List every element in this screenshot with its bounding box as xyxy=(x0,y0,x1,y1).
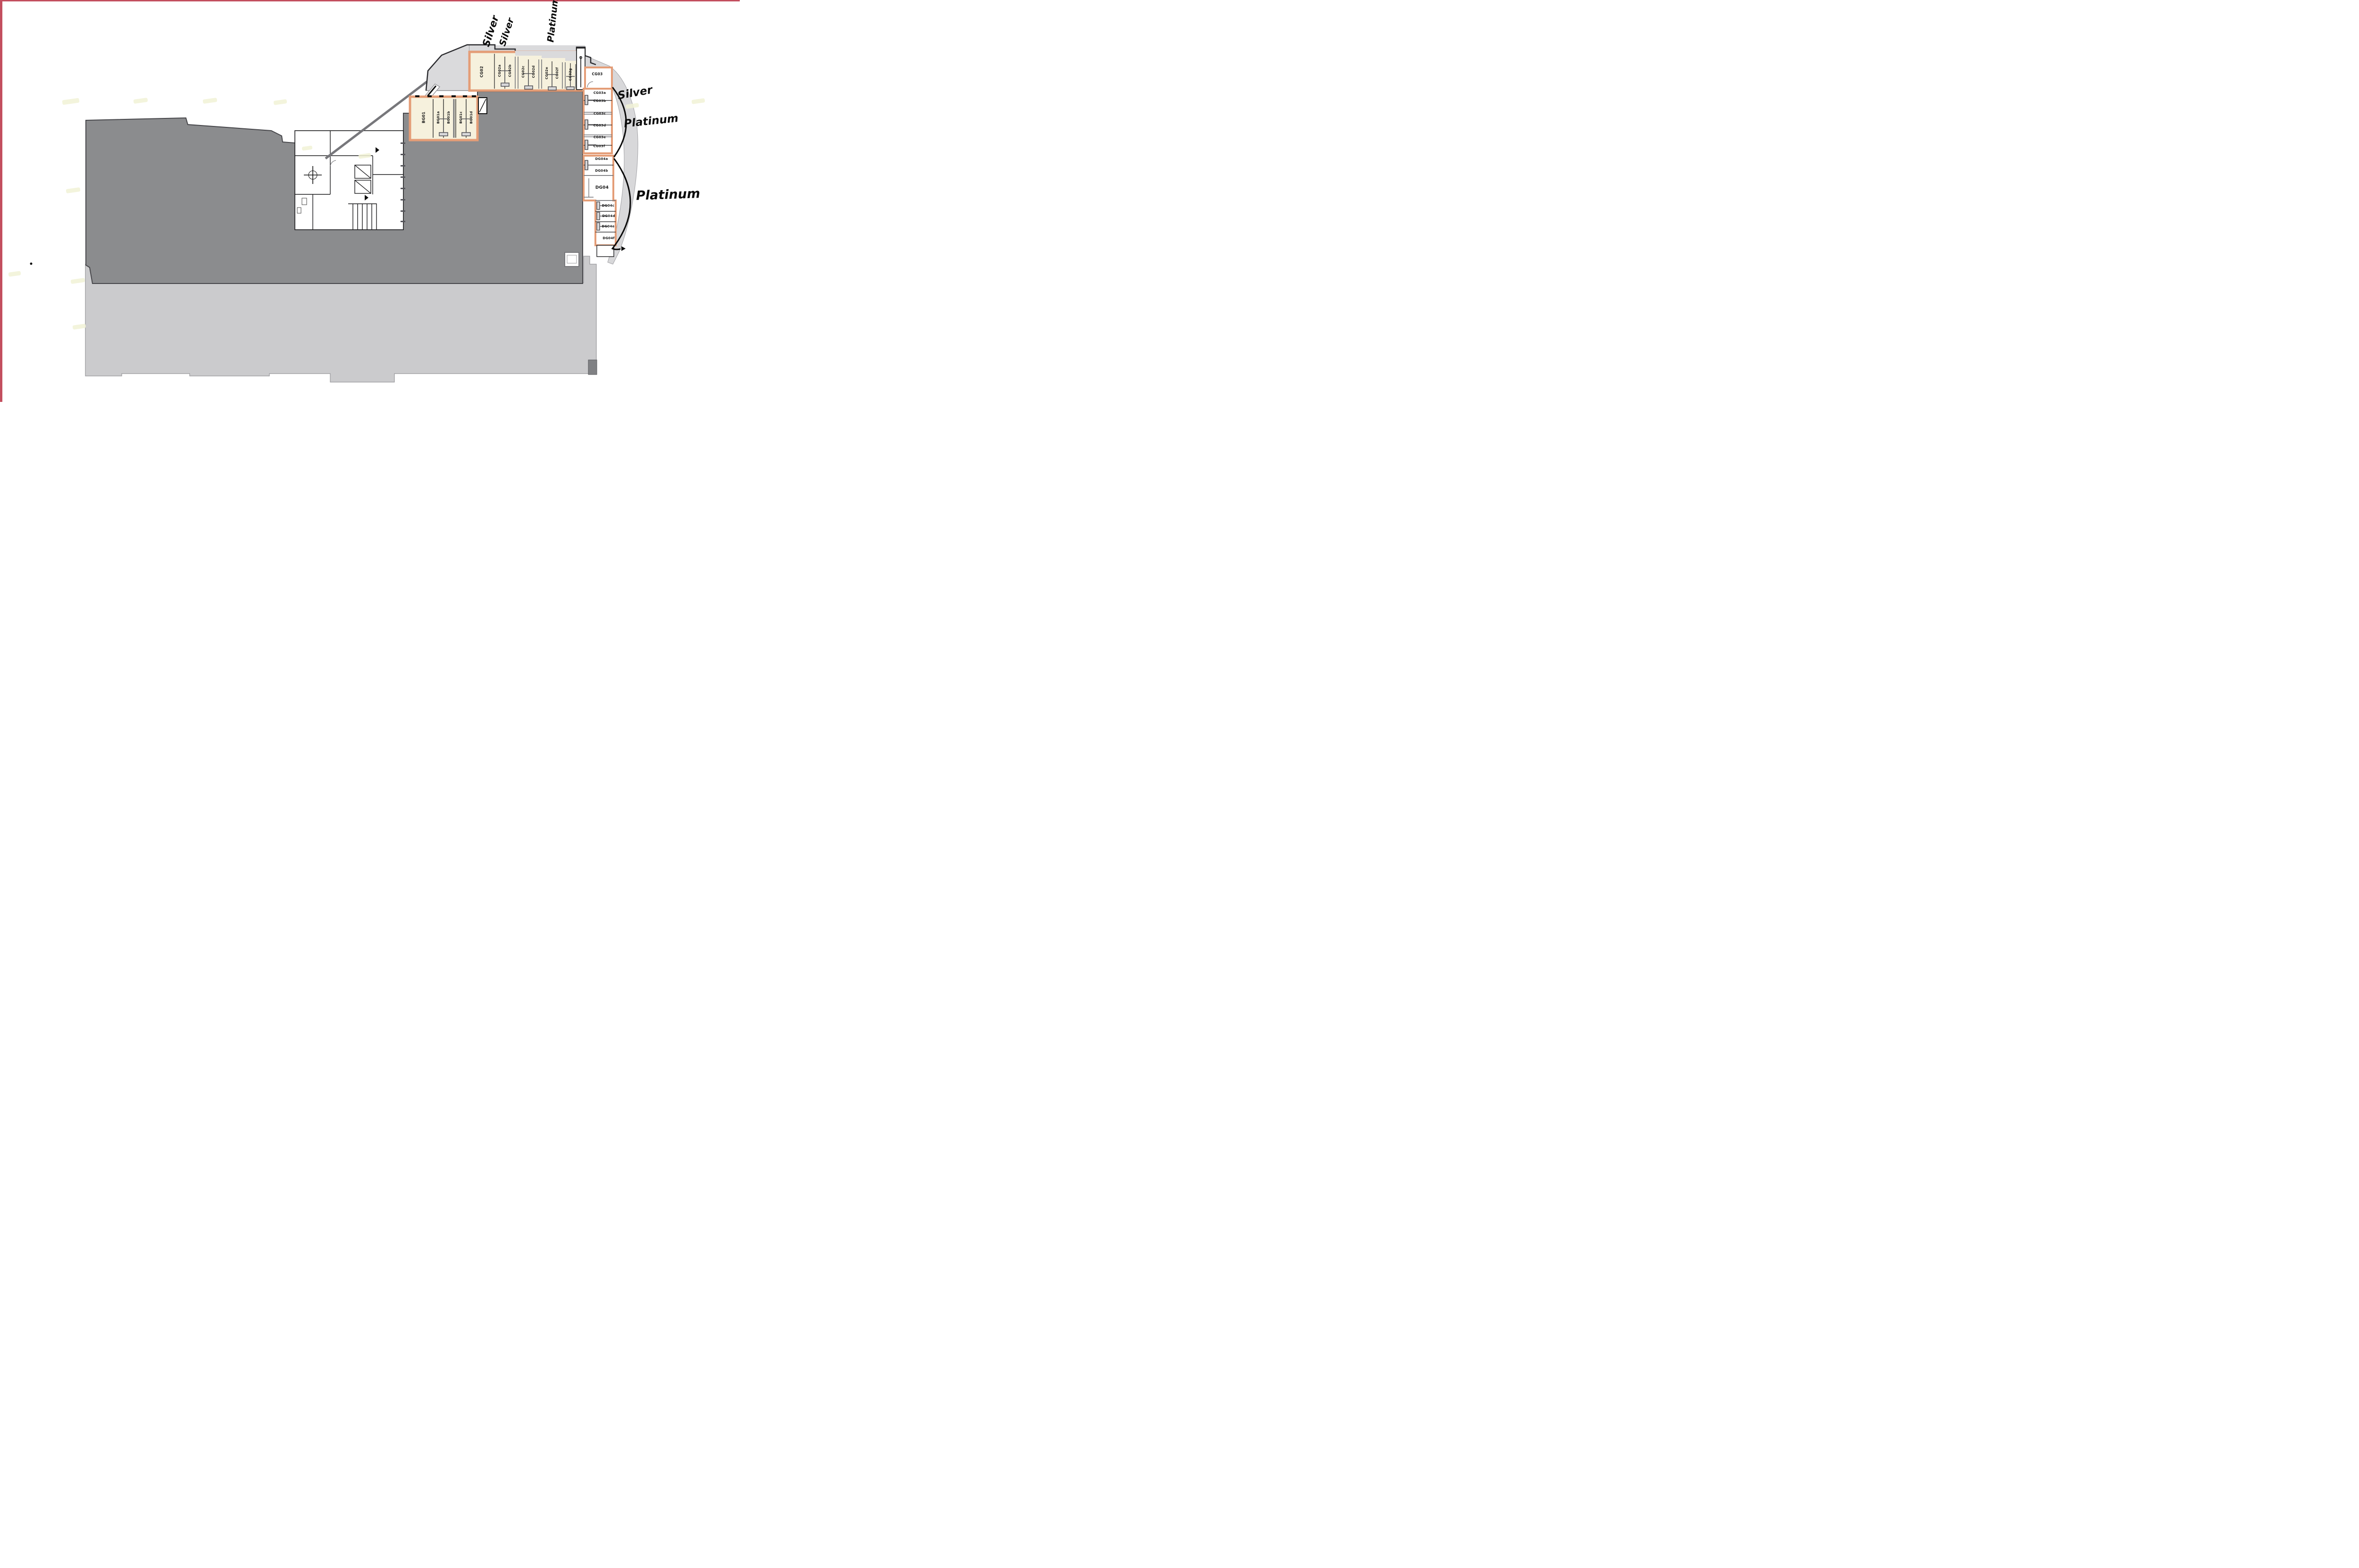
floor-plan-canvas: CG02 CG02a CG02b CG02c CG02d CG02e CG02f… xyxy=(0,0,740,402)
room-label-cg02: CG02 xyxy=(480,66,484,77)
floor-plan-drawing xyxy=(0,0,740,402)
room-label-bg01b: BG01b xyxy=(447,111,451,124)
room-label-dg04a: DG04a xyxy=(595,157,608,161)
room-label-cg02b: CG02b xyxy=(508,65,512,77)
terrace-wedge xyxy=(426,45,469,91)
room-label-dg04c: DG04c xyxy=(602,204,614,208)
dg04-exit-corridor xyxy=(597,245,614,257)
room-label-dg04d: DG04d xyxy=(602,214,615,218)
room-label-dg04f: DG04f xyxy=(602,236,614,240)
room-label-cg03c: CG03c xyxy=(594,112,606,116)
room-label-cg02f: CG02f xyxy=(555,67,559,79)
room-label-cg03d: CG03d xyxy=(594,124,606,127)
room-label-cg02c: CG02c xyxy=(521,66,525,78)
room-label-cg02e: CG02e xyxy=(545,67,549,79)
room-label-bg01d: BG01d xyxy=(469,111,473,124)
room-label-dg04b: DG04b xyxy=(595,169,608,173)
cg03-suite xyxy=(585,67,612,89)
annotation-platinum-big: Platinum xyxy=(636,186,700,203)
room-label-cg03e: CG03e xyxy=(594,135,606,139)
room-label-cg02a: CG02a xyxy=(498,65,502,77)
room-label-cg03a: CG03a xyxy=(594,91,606,95)
room-label-cg03f: CG03f xyxy=(594,144,605,148)
room-label-dg04e: DG04e xyxy=(602,225,614,228)
room-label-bg01a: BG01a xyxy=(436,111,440,124)
room-label-cg03b: CG03b xyxy=(594,99,606,103)
room-label-cg02g: CG02g xyxy=(569,68,572,81)
dark-annex xyxy=(588,360,597,375)
room-label-dg04: DG04 xyxy=(595,185,609,190)
room-label-bg01c: BG01c xyxy=(459,111,463,124)
room-label-cg02d: CG02d xyxy=(532,66,535,78)
room-label-cg03: CG03 xyxy=(592,72,603,76)
stray-dot xyxy=(30,263,33,265)
room-label-bg01: BG01 xyxy=(422,112,426,124)
